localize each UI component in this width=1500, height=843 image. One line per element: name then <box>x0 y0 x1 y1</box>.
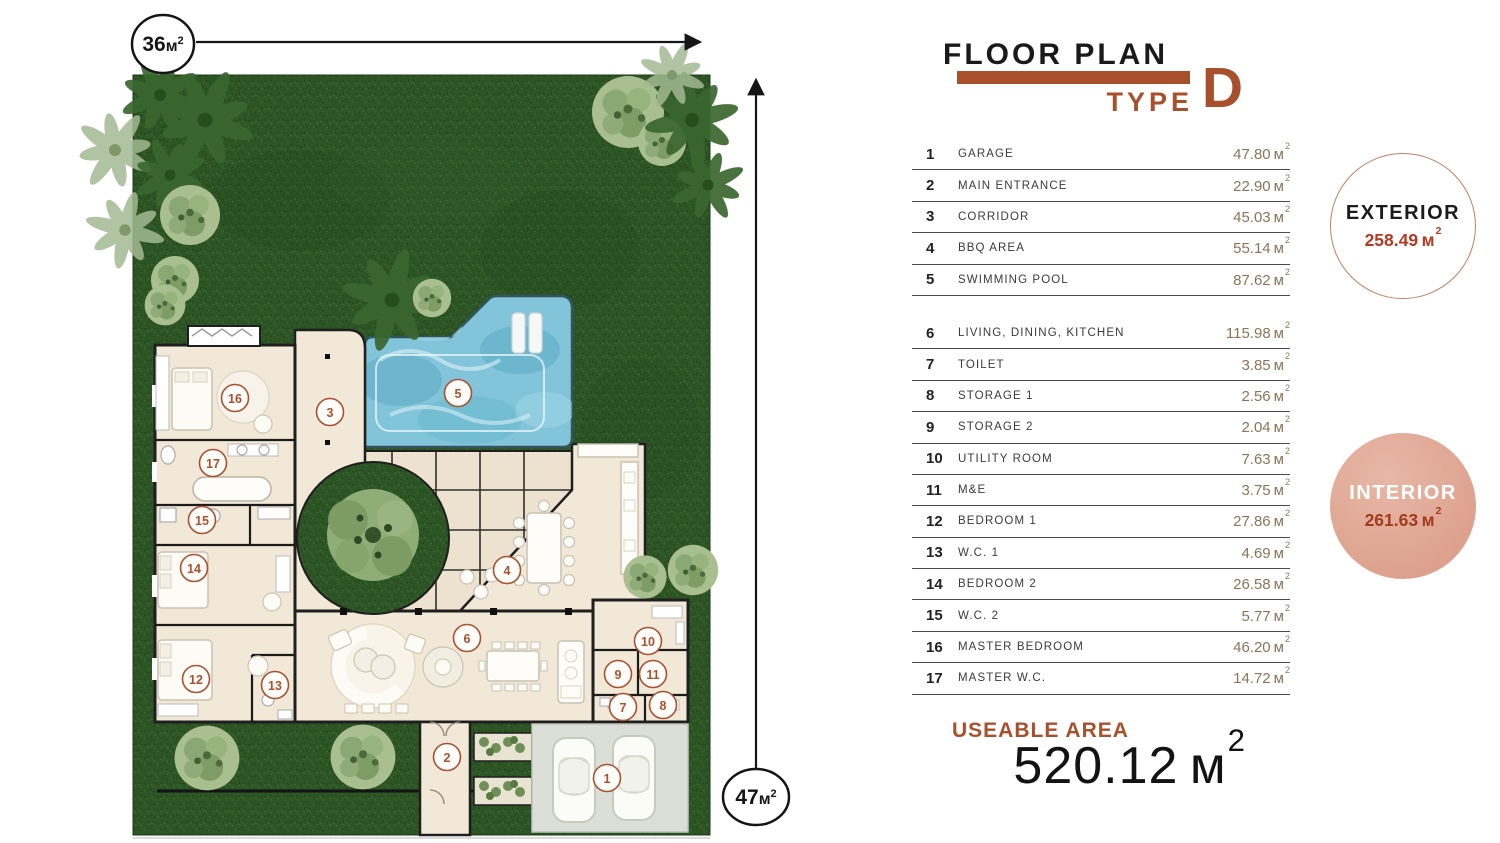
room-badge-number: 4 <box>504 564 511 578</box>
legend-row: 5 SWIMMING POOL 87.62 м2 <box>912 265 1290 296</box>
legend-row: 4 BBQ AREA 55.14 м2 <box>912 233 1290 264</box>
room-badge-number: 3 <box>327 406 334 420</box>
room-badge-number: 12 <box>189 673 203 687</box>
room-name: TOILET <box>952 359 1241 371</box>
exterior-area-circle: EXTERIOR 258.49 м2 <box>1330 153 1476 299</box>
room-number: 7 <box>912 356 952 373</box>
page-title: FLOOR PLAN <box>943 38 1168 72</box>
room-badge-number: 16 <box>228 392 242 406</box>
room-badge-number: 5 <box>455 387 462 401</box>
room-area: 3.85 м2 <box>1241 356 1290 374</box>
room-area: 14.72 м2 <box>1233 669 1290 687</box>
floor-plan-page: 1234567891011121314151617 36м2 47м2 FLOO… <box>0 0 1500 843</box>
svg-text:36м2: 36м2 <box>142 33 183 56</box>
room-badge-number: 14 <box>187 562 201 576</box>
room-number: 11 <box>912 482 952 499</box>
room-area: 87.62 м2 <box>1233 271 1290 289</box>
plan-type-label: TYPE <box>1106 87 1193 118</box>
room-number: 6 <box>912 325 952 342</box>
legend-row: 1 GARAGE 47.80 м2 <box>912 139 1290 170</box>
room-number: 1 <box>912 146 952 163</box>
room-area: 2.56 м2 <box>1241 387 1290 405</box>
legend-row: 2 MAIN ENTRANCE 22.90 м2 <box>912 170 1290 201</box>
room-area: 3.75 м2 <box>1241 481 1290 499</box>
room-area: 115.98 м2 <box>1226 324 1290 342</box>
room-area: 7.63 м2 <box>1241 450 1290 468</box>
room-number: 12 <box>912 513 952 530</box>
legend-row: 13 W.C. 1 4.69 м2 <box>912 538 1290 569</box>
room-number: 5 <box>912 271 952 288</box>
room-number: 8 <box>912 387 952 404</box>
room-badge-number: 8 <box>660 699 667 713</box>
room-name: W.C. 2 <box>952 610 1241 622</box>
room-badge-number: 13 <box>268 679 282 693</box>
legend-row: 9 STORAGE 2 2.04 м2 <box>912 412 1290 443</box>
legend-group-exterior: 1 GARAGE 47.80 м2 2 MAIN ENTRANCE 22.90 … <box>912 139 1290 296</box>
room-number: 4 <box>912 240 952 257</box>
legend-row: 15 W.C. 2 5.77 м2 <box>912 600 1290 631</box>
exterior-label: EXTERIOR <box>1346 202 1460 225</box>
exterior-value: 258.49 м2 <box>1365 230 1442 251</box>
legend-row: 10 UTILITY ROOM 7.63 м2 <box>912 444 1290 475</box>
bay-window <box>188 326 260 346</box>
legend-row: 8 STORAGE 1 2.56 м2 <box>912 381 1290 412</box>
room-name: LIVING, DINING, KITCHEN <box>952 327 1226 339</box>
title-accent-bar <box>957 71 1190 84</box>
room-badge-number: 7 <box>620 701 627 715</box>
svg-text:47м2: 47м2 <box>735 786 776 809</box>
width-dimension: 36м2 <box>132 15 700 73</box>
room-number: 16 <box>912 639 952 656</box>
room-name: SWIMMING POOL <box>952 274 1233 286</box>
room-name: W.C. 1 <box>952 547 1241 559</box>
room-name: MAIN ENTRANCE <box>952 180 1233 192</box>
legend-row: 12 BEDROOM 1 27.86 м2 <box>912 506 1290 537</box>
room-area: 55.14 м2 <box>1233 239 1290 257</box>
room-area: 26.58 м2 <box>1233 575 1290 593</box>
room-name: BEDROOM 1 <box>952 515 1233 527</box>
room-number: 14 <box>912 576 952 593</box>
room-area: 22.90 м2 <box>1233 177 1290 195</box>
room-name: CORRIDOR <box>952 211 1233 223</box>
room-number: 3 <box>912 208 952 225</box>
pool-lounger <box>512 313 525 353</box>
room-number: 17 <box>912 670 952 687</box>
room-badge-number: 15 <box>195 514 209 528</box>
floor-plan-drawing: 1234567891011121314151617 36м2 47м2 <box>0 0 840 843</box>
room-name: STORAGE 1 <box>952 390 1241 402</box>
legend-row: 3 CORRIDOR 45.03 м2 <box>912 202 1290 233</box>
interior-area-circle: INTERIOR 261.63 м2 <box>1330 433 1476 579</box>
useable-area-value: 520.12 м2 <box>1013 736 1246 796</box>
room-badge-number: 1 <box>604 772 611 786</box>
legend-row: 11 M&E 3.75 м2 <box>912 475 1290 506</box>
room-badge-number: 2 <box>444 751 451 765</box>
interior-label: INTERIOR <box>1349 482 1457 505</box>
room-number: 13 <box>912 544 952 561</box>
room-badge-number: 17 <box>206 457 220 471</box>
room-badge-number: 11 <box>646 668 659 682</box>
bathtub <box>193 477 271 501</box>
room-area: 45.03 м2 <box>1233 208 1290 226</box>
room-area: 46.20 м2 <box>1233 638 1290 656</box>
room-legend: 1 GARAGE 47.80 м2 2 MAIN ENTRANCE 22.90 … <box>912 139 1290 695</box>
room-number: 15 <box>912 607 952 624</box>
room-number: 10 <box>912 450 952 467</box>
room-badge-number: 10 <box>641 635 655 649</box>
room-name: GARAGE <box>952 148 1233 160</box>
legend-row: 6 LIVING, DINING, KITCHEN 115.98 м2 <box>912 318 1290 349</box>
car <box>553 738 595 822</box>
courtyard-tree <box>297 462 449 614</box>
room-name: UTILITY ROOM <box>952 453 1241 465</box>
room-name: MASTER W.C. <box>952 672 1233 684</box>
legend-row: 16 MASTER BEDROOM 46.20 м2 <box>912 632 1290 663</box>
plan-type-letter: D <box>1202 60 1243 117</box>
room-number: 9 <box>912 419 952 436</box>
room-badge-number: 9 <box>615 668 622 682</box>
dining-table <box>487 651 539 681</box>
room-area: 4.69 м2 <box>1241 544 1290 562</box>
legend-row: 17 MASTER W.C. 14.72 м2 <box>912 663 1290 694</box>
room-name: BEDROOM 2 <box>952 578 1233 590</box>
legend-row: 14 BEDROOM 2 26.58 м2 <box>912 569 1290 600</box>
room-area: 27.86 м2 <box>1233 512 1290 530</box>
room-name: M&E <box>952 484 1241 496</box>
room-name: STORAGE 2 <box>952 421 1241 433</box>
room-area: 47.80 м2 <box>1233 145 1290 163</box>
legend-row: 7 TOILET 3.85 м2 <box>912 349 1290 380</box>
left-wing <box>152 326 295 722</box>
room-area: 2.04 м2 <box>1241 418 1290 436</box>
pool-lounger <box>529 313 542 353</box>
legend-group-interior: 6 LIVING, DINING, KITCHEN 115.98 м2 7 TO… <box>912 318 1290 695</box>
room-area: 5.77 м2 <box>1241 607 1290 625</box>
room-badge-number: 6 <box>464 632 471 646</box>
room-number: 2 <box>912 177 952 194</box>
room-name: MASTER BEDROOM <box>952 641 1233 653</box>
room-name: BBQ AREA <box>952 242 1233 254</box>
interior-value: 261.63 м2 <box>1365 510 1442 531</box>
